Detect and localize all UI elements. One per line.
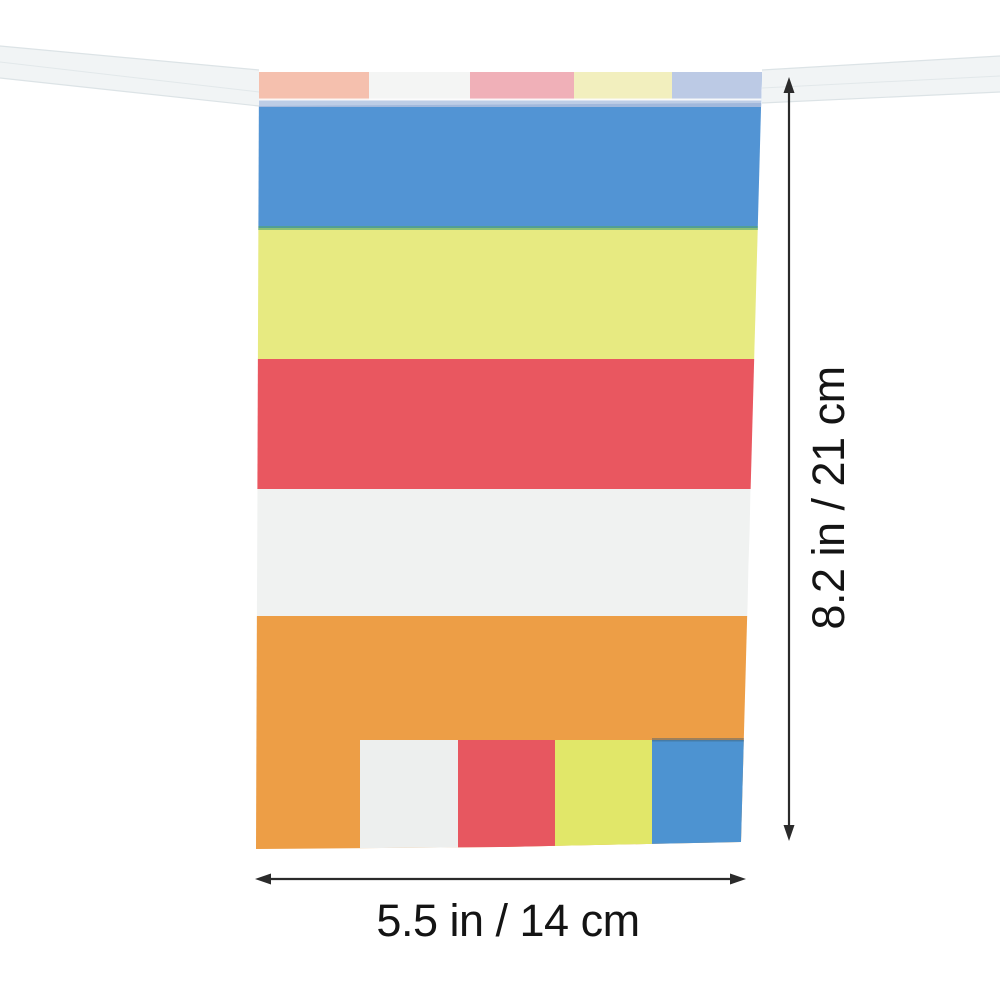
pennant-flag <box>240 60 780 860</box>
product-photo-bunting-flag: 8.2 in / 21 cm 5.5 in / 14 cm <box>0 0 1000 1000</box>
fabric-texture-overlay <box>240 60 780 860</box>
ribbon-over-flag-segment <box>259 70 762 106</box>
height-dimension-label: 8.2 in / 21 cm <box>803 366 854 629</box>
width-dimension-label: 5.5 in / 14 cm <box>376 895 639 946</box>
